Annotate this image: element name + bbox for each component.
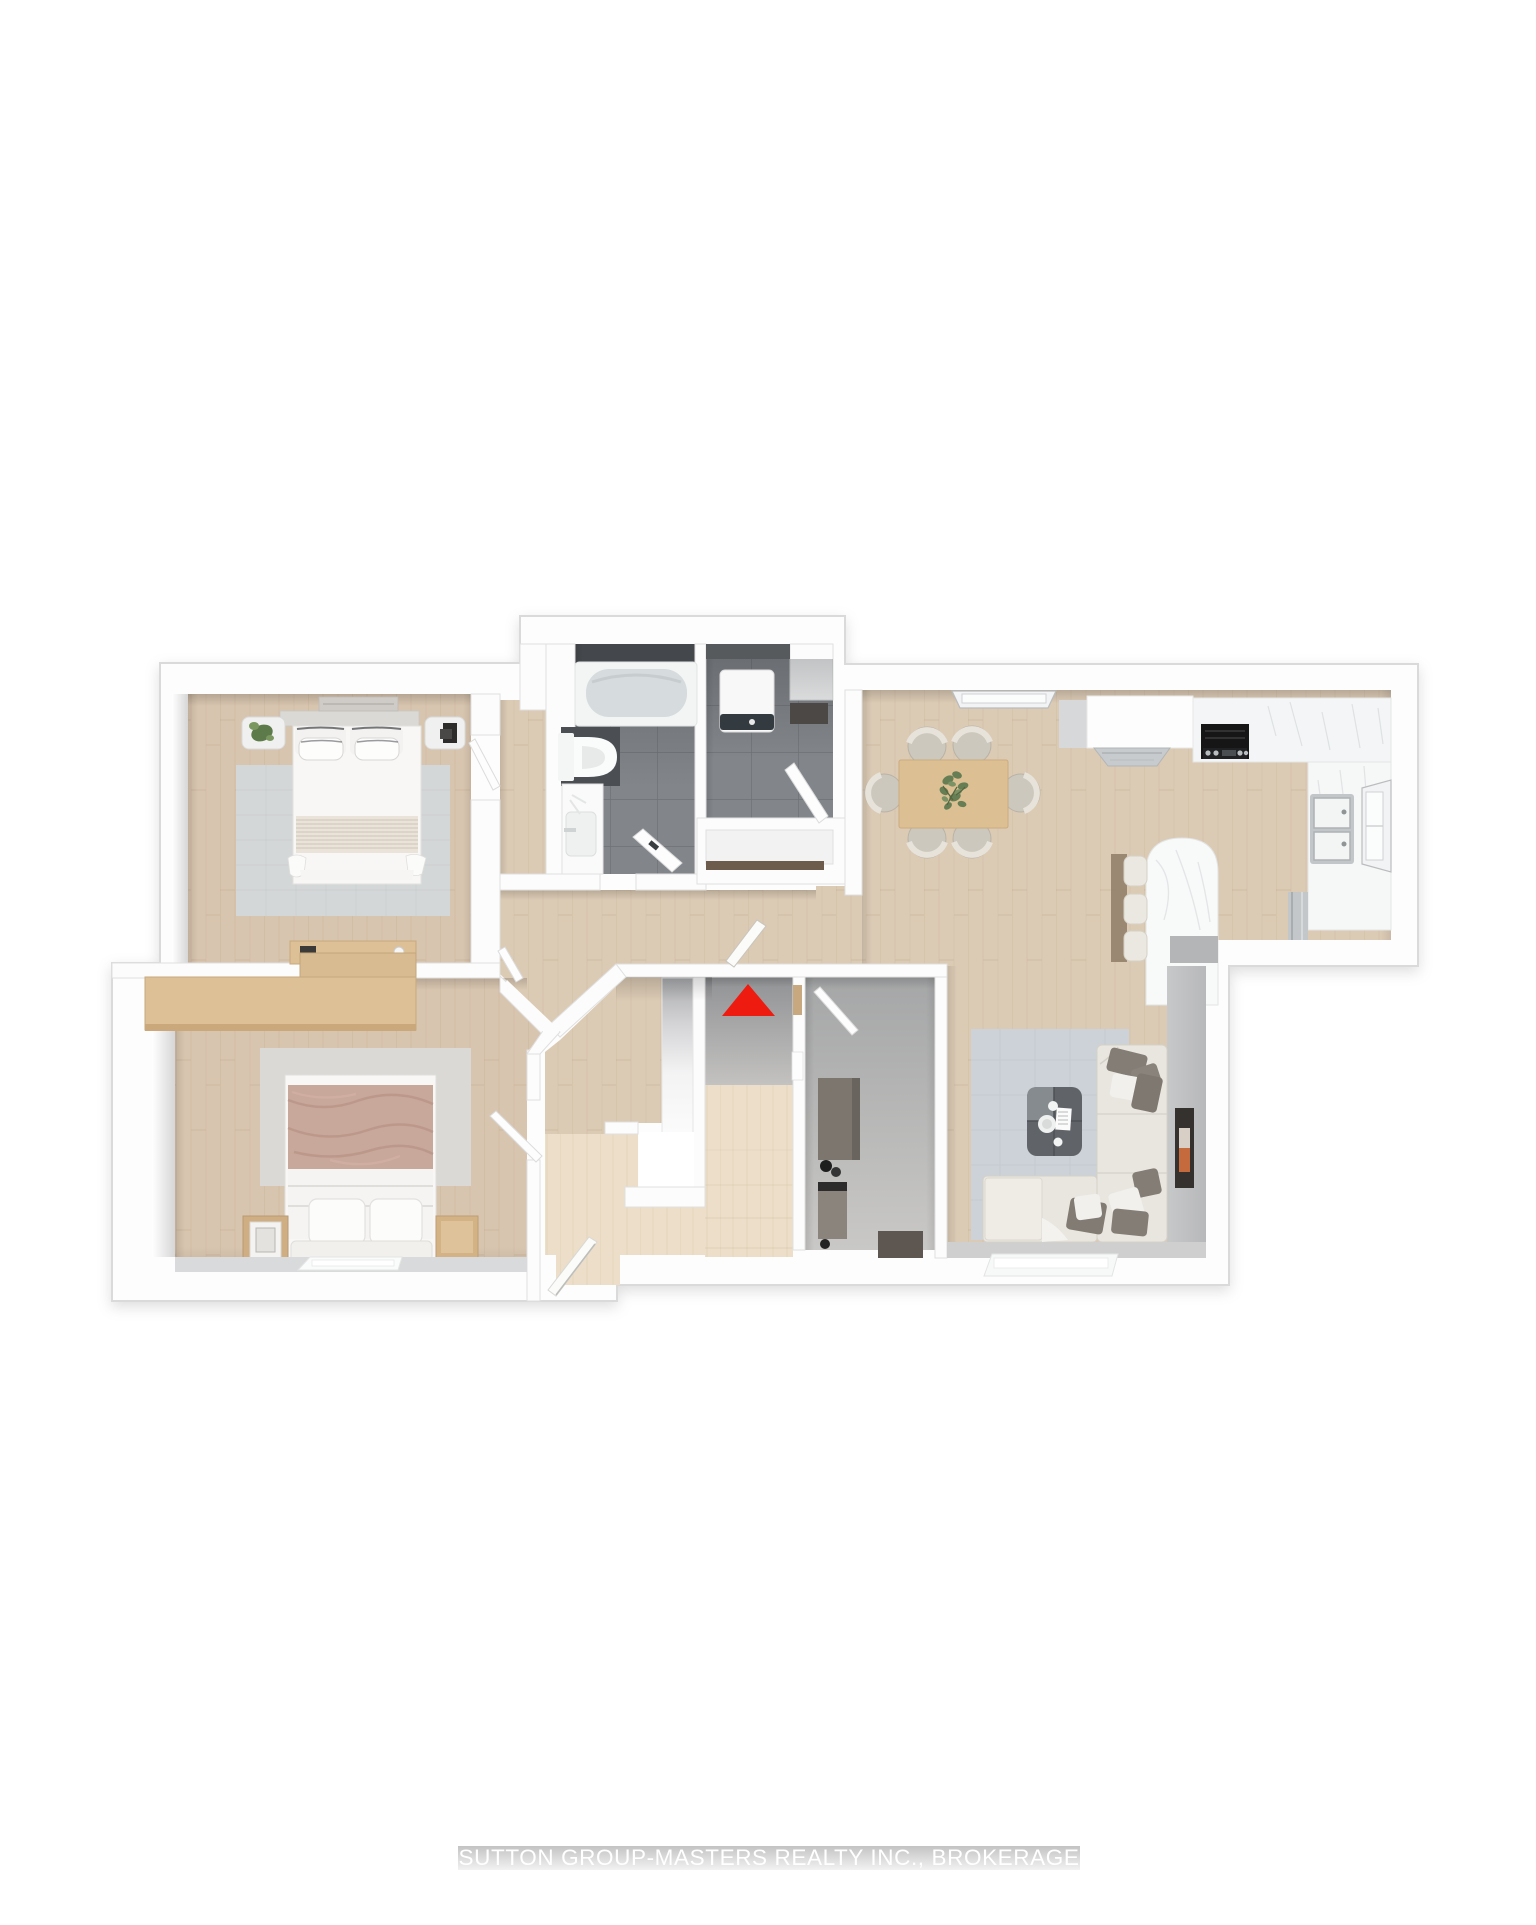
svg-text:SUTTON GROUP-MASTERS REALTY IN: SUTTON GROUP-MASTERS REALTY INC., BROKER… xyxy=(459,1845,1080,1870)
